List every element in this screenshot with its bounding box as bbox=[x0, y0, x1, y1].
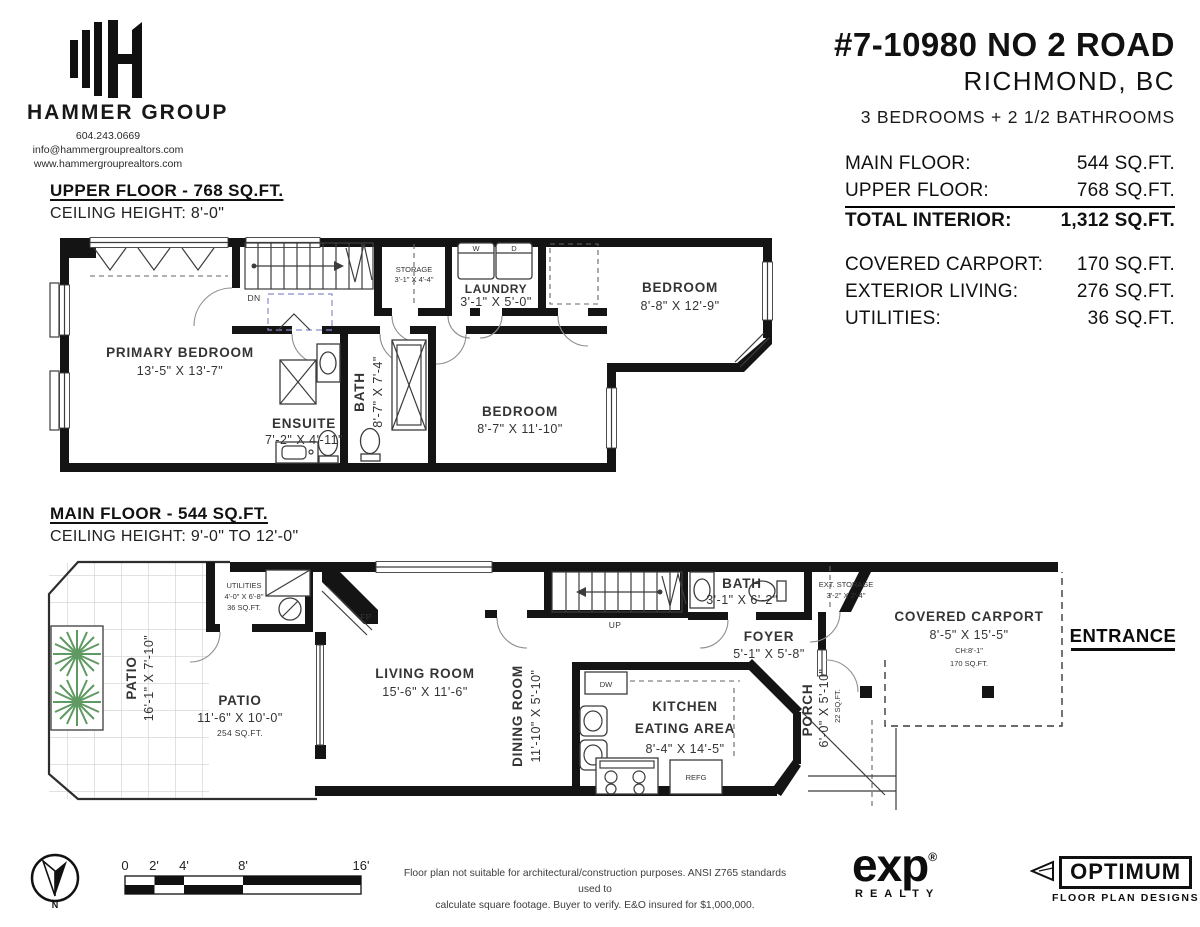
scale-tick: 4' bbox=[179, 858, 189, 873]
disclaimer-line2: calculate square footage. Buyer to verif… bbox=[395, 898, 795, 914]
dining-room-label: DINING ROOM bbox=[510, 665, 525, 767]
row-label: UTILITIES: bbox=[845, 306, 941, 333]
casement-window-icons bbox=[90, 248, 228, 276]
listing-address: #7-10980 NO 2 ROAD bbox=[640, 26, 1175, 64]
living-room-dims: 15'-6" X 11'-6" bbox=[382, 685, 468, 699]
optimum-logo: OPTIMUM FLOOR PLAN DESIGNS bbox=[1052, 856, 1199, 904]
bath-dims: 3'-1" X 6'-2" bbox=[706, 593, 778, 607]
kitchen-label-2: EATING AREA bbox=[635, 721, 735, 736]
optimum-tagline: FLOOR PLAN DESIGNS bbox=[1052, 892, 1199, 904]
stairs-down bbox=[245, 243, 373, 289]
main-floor-ceiling: CEILING HEIGHT: 9'-0" TO 12'-0" bbox=[50, 528, 298, 546]
row-value: 768 SQ.FT. bbox=[1077, 178, 1175, 205]
carport-ch: CH:8'-1" bbox=[955, 646, 983, 655]
disclaimer-line1: Floor plan not suitable for architectura… bbox=[395, 866, 795, 898]
stairs-up bbox=[552, 572, 686, 612]
hammer-group-logo-icon bbox=[58, 20, 158, 98]
ensuite-dims: 7'-2" X 4'-11" bbox=[265, 433, 343, 447]
utilities-dims: 4'-0" X 6'-8" bbox=[224, 592, 263, 601]
entrance-underline bbox=[1071, 648, 1175, 651]
kitchen-dims: 8'-4" X 14'-5" bbox=[645, 742, 724, 756]
optimum-wordmark: OPTIMUM bbox=[1059, 856, 1192, 889]
north-compass-icon: N bbox=[26, 850, 86, 914]
primary-bedroom-label: PRIMARY BEDROOM bbox=[106, 345, 254, 360]
foyer-dims: 5'-1" X 5'-8" bbox=[733, 647, 805, 661]
table-row: EXTERIOR LIVING: 276 SQ.FT. bbox=[845, 279, 1175, 306]
carport-dims: 8'-5" X 15'-5" bbox=[929, 628, 1008, 642]
table-row: UPPER FLOOR: 768 SQ.FT. bbox=[845, 178, 1175, 208]
plant-icon bbox=[53, 630, 101, 678]
carport-label: COVERED CARPORT bbox=[894, 609, 1043, 624]
ext-storage-label: EXT. STORAGE bbox=[819, 580, 873, 589]
plant-icon bbox=[53, 678, 101, 726]
compass-north-label: N bbox=[52, 900, 59, 910]
scale-tick: 2' bbox=[149, 858, 159, 873]
row-label: EXTERIOR LIVING: bbox=[845, 279, 1018, 306]
area-summary-table: MAIN FLOOR: 544 SQ.FT. UPPER FLOOR: 768 … bbox=[845, 151, 1175, 333]
listing-title-block: #7-10980 NO 2 ROAD RICHMOND, BC 3 BEDROO… bbox=[640, 26, 1175, 128]
bath-label: BATH bbox=[352, 372, 367, 412]
storage-dims: 3'-1" X 4'-4" bbox=[394, 275, 433, 284]
porch-dims: 6'-0" X 5'-10" bbox=[817, 668, 831, 747]
kitchen-label-1: KITCHEN bbox=[652, 699, 718, 714]
storage-label: STORAGE bbox=[396, 265, 433, 274]
living-room-label: LIVING ROOM bbox=[375, 666, 475, 681]
row-label: MAIN FLOOR: bbox=[845, 151, 971, 178]
foyer-label: FOYER bbox=[744, 629, 795, 644]
bedroom-mid-dims: 8'-7" X 11'-10" bbox=[477, 422, 563, 436]
listing-city: RICHMOND, BC bbox=[640, 66, 1175, 97]
dishwasher-label: DW bbox=[600, 680, 613, 689]
stairs-up-label: UP bbox=[609, 620, 621, 630]
patio-label: PATIO bbox=[218, 693, 261, 708]
row-label: UPPER FLOOR: bbox=[845, 178, 989, 205]
stairs-down-label: DN bbox=[248, 293, 261, 303]
patio-side-dims: 16'-1" X 7'-10" bbox=[142, 635, 156, 721]
brand-email[interactable]: info@hammergrouprealtors.com bbox=[13, 143, 203, 157]
entrance-label: ENTRANCE bbox=[1070, 625, 1177, 646]
brand-website[interactable]: www.hammergrouprealtors.com bbox=[13, 157, 203, 171]
exp-realty-label: REALTY bbox=[855, 888, 940, 900]
carport-area: 170 SQ.FT. bbox=[950, 659, 988, 668]
listing-bedbath: 3 BEDROOMS + 2 1/2 BATHROOMS bbox=[640, 107, 1175, 128]
scale-bar-segments bbox=[125, 876, 361, 894]
laundry-label: LAUNDRY bbox=[465, 282, 527, 296]
ext-storage-dims: 3'-2" X 2'-4" bbox=[826, 591, 865, 600]
main-floor-title: MAIN FLOOR - 544 SQ.FT. bbox=[50, 504, 268, 524]
laundry-dims: 3'-1" X 5'-0" bbox=[460, 295, 532, 309]
exp-wordmark: exp bbox=[852, 839, 928, 891]
scale-bar: 0 2' 4' 8' 16' bbox=[118, 858, 378, 902]
scale-tick: 0 bbox=[121, 858, 128, 873]
bedroom-mid-label: BEDROOM bbox=[482, 404, 558, 419]
registered-mark-icon: ® bbox=[928, 850, 936, 864]
patio-dims: 11'-6" X 10'-0" bbox=[197, 711, 283, 725]
washer-label: W bbox=[472, 244, 480, 253]
row-value: 276 SQ.FT. bbox=[1077, 279, 1175, 306]
pencil-arrow-icon bbox=[1030, 860, 1054, 882]
primary-bedroom-dims: 13'-5" X 13'-7" bbox=[137, 364, 223, 378]
ensuite-label: ENSUITE bbox=[272, 416, 336, 431]
upper-floor-plan: PRIMARY BEDROOM 13'-5" X 13'-7" ENSUITE … bbox=[40, 230, 780, 480]
fridge-label: REFG bbox=[686, 773, 707, 782]
bedroom-right-label: BEDROOM bbox=[642, 280, 718, 295]
patio-area: 254 SQ.FT. bbox=[217, 728, 263, 738]
patio-side-label: PATIO bbox=[124, 656, 139, 699]
table-row: TOTAL INTERIOR: 1,312 SQ.FT. bbox=[845, 208, 1175, 235]
row-label: COVERED CARPORT: bbox=[845, 252, 1043, 279]
table-row: COVERED CARPORT: 170 SQ.FT. bbox=[845, 252, 1175, 279]
dryer-label: D bbox=[511, 244, 517, 253]
attic-access-dashed bbox=[268, 294, 332, 330]
row-value: 1,312 SQ.FT. bbox=[1061, 208, 1175, 235]
brand-phone: 604.243.0669 bbox=[13, 129, 203, 143]
row-value: 170 SQ.FT. bbox=[1077, 252, 1175, 279]
brand-contact: 604.243.0669 info@hammergrouprealtors.co… bbox=[13, 129, 203, 172]
upper-floor-ceiling: CEILING HEIGHT: 8'-0" bbox=[50, 205, 224, 223]
bath-dims: 8'-7" X 7'-4" bbox=[371, 356, 385, 428]
closet-dashed bbox=[550, 244, 598, 304]
row-value: 544 SQ.FT. bbox=[1077, 151, 1175, 178]
row-value: 36 SQ.FT. bbox=[1088, 306, 1175, 333]
disclaimer: Floor plan not suitable for architectura… bbox=[395, 866, 795, 914]
porch-area: 22 SQ.FT. bbox=[833, 689, 842, 723]
utilities-area: 36 SQ.FT. bbox=[227, 603, 261, 612]
utilities-label: UTILITIES bbox=[226, 581, 261, 590]
bedroom-right-dims: 8'-8" X 12'-9" bbox=[640, 299, 719, 313]
dining-room-dims: 11'-10" X 5'-10" bbox=[529, 670, 543, 763]
main-floor-plan: PATIO 16'-1" X 7'-10" UTILITIES 4'-0" X … bbox=[40, 548, 1180, 818]
porch-label: PORCH bbox=[800, 684, 815, 737]
exp-realty-logo: exp® REALTY bbox=[852, 845, 940, 900]
scale-tick: 16' bbox=[353, 858, 370, 873]
bath-label: BATH bbox=[722, 576, 762, 591]
table-row: MAIN FLOOR: 544 SQ.FT. bbox=[845, 151, 1175, 178]
brand-name: HAMMER GROUP bbox=[27, 101, 228, 125]
row-label: TOTAL INTERIOR: bbox=[845, 208, 1012, 235]
upper-floor-title: UPPER FLOOR - 768 SQ.FT. bbox=[50, 181, 283, 201]
fireplace-label: FP bbox=[360, 612, 371, 622]
table-row: UTILITIES: 36 SQ.FT. bbox=[845, 306, 1175, 333]
floorplan-page: HAMMER GROUP 604.243.0669 info@hammergro… bbox=[0, 0, 1200, 927]
scale-tick: 8' bbox=[238, 858, 248, 873]
